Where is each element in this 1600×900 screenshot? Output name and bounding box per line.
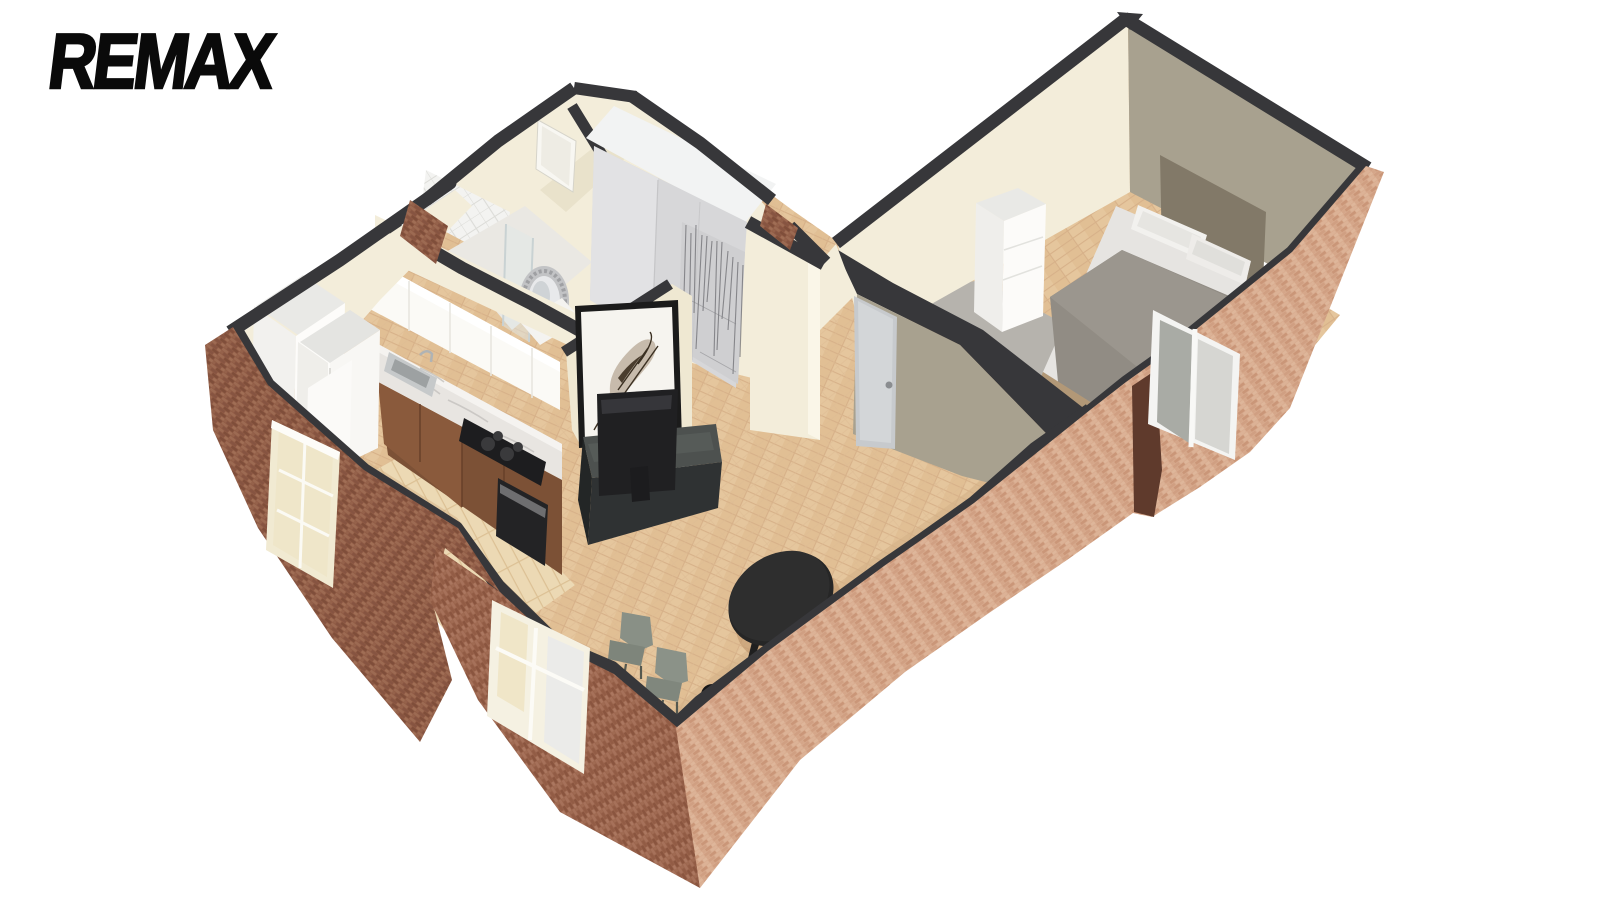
- svg-text:REMAX: REMAX: [44, 17, 280, 105]
